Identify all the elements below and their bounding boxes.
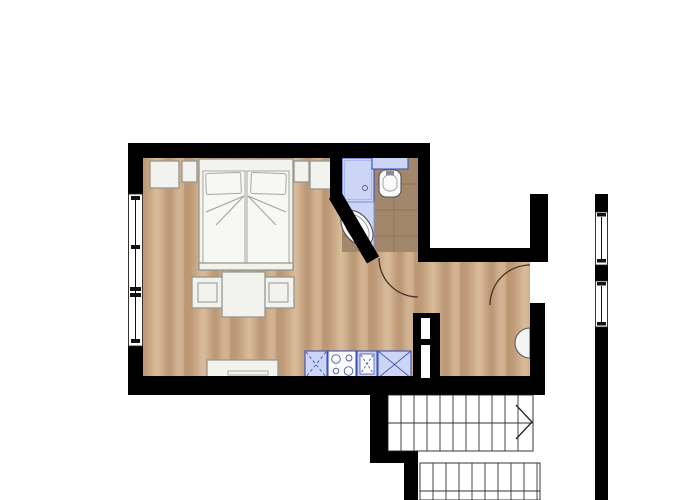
pillow-right [251,172,287,194]
kitchenette [305,351,411,378]
wall-bottom [128,376,545,395]
service-shaft [413,313,440,383]
dining-table [222,272,265,317]
floor-plan-svg [0,0,700,500]
nightstand-left [182,161,197,182]
stair-flight-upper [388,395,533,451]
kitchen-refrigerator [378,351,411,378]
shower [342,158,374,202]
toilet-cistern [372,157,408,169]
kitchen-stove [328,351,356,378]
bed-footboard [199,263,293,270]
pillow-left [206,172,242,194]
nightstand-right [294,161,309,182]
chair-right [263,277,294,308]
wardrobe-right [310,161,333,189]
window-left [129,194,143,346]
wall-corridor-left-upper [530,194,548,254]
wall-top [128,143,428,158]
wall-bathroom-right [418,143,430,262]
chair-left [192,277,223,308]
window-corridor-lower [596,281,608,327]
wall-stair-lower [404,463,418,500]
wall-hall-right [530,303,545,381]
kitchen-cabinet [305,351,327,378]
floor-plan-canvas [0,0,700,500]
stair-flight-lower [420,463,540,500]
wall-hall-top [418,248,548,262]
wall-stair-middle [370,451,418,463]
wardrobe-left [150,161,179,188]
kitchen-sink [357,351,377,378]
window-corridor-upper [596,212,608,265]
double-bed [199,159,293,270]
toilet-flush-icon [386,171,394,175]
